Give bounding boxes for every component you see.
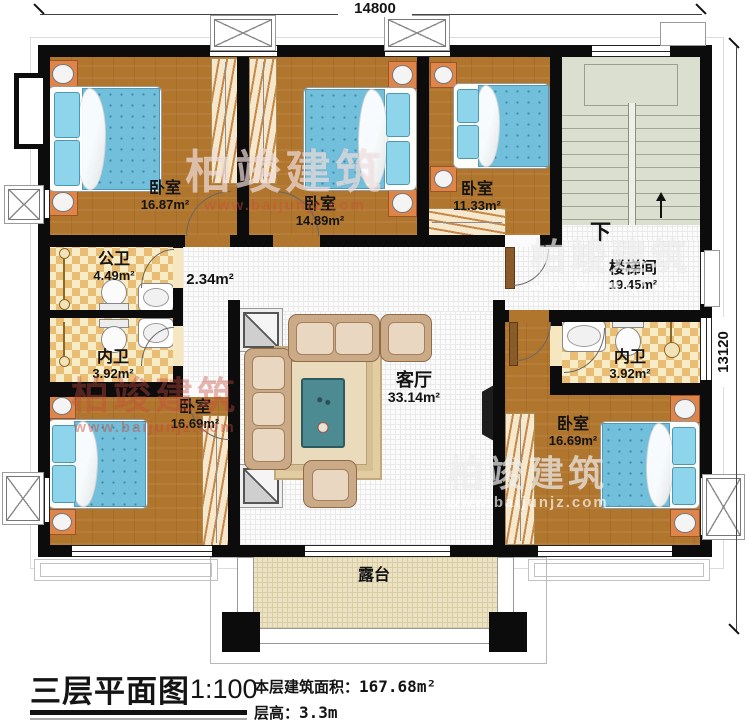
room-name: 卧室 — [523, 416, 623, 434]
coffee-table — [301, 378, 345, 448]
plan-scale-value: 1:100 — [190, 674, 258, 704]
room-area: 2.34m² — [186, 271, 234, 288]
nightstand — [430, 62, 457, 88]
terrace-door — [305, 545, 450, 557]
room-name: 客厅 — [364, 370, 464, 390]
wardrobe — [249, 58, 277, 184]
window — [538, 545, 672, 557]
room-area: 16.69m² — [145, 417, 245, 432]
nightstand — [670, 509, 700, 537]
dimension-line-right — [736, 47, 737, 632]
sofa-cushion — [312, 469, 349, 501]
window-symbol-icon — [660, 22, 706, 46]
window — [72, 545, 212, 557]
room-label-bath-public: 公卫 4.49m² — [79, 251, 149, 283]
room-label-bedroom-bottom-left: 卧室 16.69m² — [145, 399, 245, 431]
rail-knob-icon — [59, 299, 70, 310]
pillow — [457, 89, 479, 123]
wall-bedroom-divider-2 — [417, 45, 429, 247]
sofa-cushion — [388, 322, 425, 355]
room-area: 19.45m² — [583, 278, 683, 293]
stair-down-label: 下 — [590, 216, 620, 240]
plan-title: 三层平面图 — [30, 666, 190, 711]
room-area: 3.92m² — [595, 367, 665, 382]
sofa-cushion — [335, 322, 373, 355]
room-label-living-room: 客厅 33.14m² — [364, 370, 464, 406]
towel-rail — [63, 252, 65, 304]
sofa-cushion — [252, 392, 285, 426]
pillow — [457, 125, 479, 159]
wall-bath-right-bottom — [550, 383, 712, 395]
pillow — [386, 93, 410, 137]
dimension-label-right: 13120 — [715, 317, 733, 387]
dimension-tick-icon — [695, 3, 706, 14]
title-underline-2 — [30, 718, 247, 720]
door-gap — [509, 310, 549, 322]
door-gap — [173, 326, 183, 366]
window-sill — [534, 563, 704, 577]
room-name: 卧室 — [270, 196, 370, 214]
pillow — [52, 465, 76, 503]
dimension-tick-icon — [33, 3, 44, 14]
window — [592, 45, 670, 57]
door-gap — [185, 235, 230, 247]
wall-stairwell-left — [550, 45, 562, 247]
floor-height-label: 层高： — [254, 705, 299, 722]
sofa-loveseat — [288, 314, 380, 362]
sofa-cushion — [252, 428, 285, 462]
wall-baths-left-divider — [38, 310, 173, 318]
floor-area-line: 本层建筑面积：167.68m² — [254, 676, 436, 697]
room-label-bedroom-top-middle: 卧室 14.89m² — [270, 196, 370, 228]
room-area: 16.87m² — [115, 198, 215, 213]
room-label-stairwell: 楼梯间 19.45m² — [583, 260, 683, 292]
nightstand — [388, 189, 417, 217]
window — [700, 318, 712, 380]
window-symbol-icon — [8, 189, 40, 220]
floor-height-line: 层高：3.3m — [254, 702, 338, 723]
nightstand — [670, 395, 700, 423]
flue-bump — [14, 73, 48, 149]
floor-area-value: 167.68m² — [359, 677, 436, 696]
sofa-cushion — [252, 356, 285, 390]
title-underline — [30, 710, 247, 715]
terrace-parapet — [237, 628, 514, 644]
wall-bedroom-divider-1 — [237, 45, 249, 247]
wardrobe — [211, 58, 239, 184]
window-symbol-icon — [6, 476, 40, 521]
stair-landing — [584, 64, 678, 106]
room-area: 16.69m² — [523, 434, 623, 449]
stair-divider — [628, 103, 636, 225]
window-symbol-icon — [704, 250, 720, 307]
pillow — [54, 140, 80, 186]
pillow — [52, 425, 76, 463]
room-name: 卧室 — [145, 399, 245, 417]
floor-height-value: 3.3m — [299, 703, 338, 722]
room-area: 3.92m² — [78, 367, 148, 382]
floor-area-label: 本层建筑面积： — [254, 679, 359, 696]
dimension-label-top: 14800 — [338, 0, 412, 17]
room-label-bath-ensuite-left: 内卫 3.92m² — [78, 349, 148, 381]
room-name: 露台 — [358, 567, 390, 584]
pillow — [386, 141, 410, 185]
room-area: 11.33m² — [427, 199, 527, 214]
room-name: 卧室 — [427, 181, 527, 199]
window-symbol-icon — [214, 19, 272, 47]
room-label-bedroom-top-right: 卧室 11.33m² — [427, 181, 527, 213]
window-symbol-icon — [388, 19, 446, 47]
dimension-tick-icon — [728, 37, 739, 48]
room-area: 33.14m² — [364, 390, 464, 406]
room-area: 14.89m² — [270, 214, 370, 229]
room-name: 内卫 — [595, 349, 665, 367]
armchair — [380, 314, 432, 362]
terrace-column — [222, 612, 260, 652]
side-table — [243, 312, 279, 348]
nightstand — [388, 61, 417, 89]
room-label-corridor: 2.34m² — [170, 272, 250, 289]
nightstand — [48, 188, 78, 216]
room-label-bedroom-bottom-right: 卧室 16.69m² — [523, 416, 623, 448]
wall-living-east — [493, 300, 505, 557]
room-name: 公卫 — [79, 251, 149, 269]
room-label-terrace: 露台 — [334, 567, 414, 585]
plan-scale: 1:100 — [190, 674, 258, 705]
room-name: 内卫 — [78, 349, 148, 367]
pillow — [672, 467, 696, 505]
nightstand — [48, 509, 76, 535]
room-name: 楼梯间 — [583, 260, 683, 278]
room-area: 4.49m² — [79, 269, 149, 284]
pillow — [54, 92, 80, 138]
window-sill — [40, 563, 212, 577]
pillow — [672, 427, 696, 465]
nightstand — [48, 60, 78, 88]
rail-knob-icon — [59, 248, 70, 259]
sofa-main — [244, 348, 292, 470]
rail-knob-icon — [59, 356, 70, 367]
door-gap — [183, 382, 228, 397]
room-name: 卧室 — [115, 180, 215, 198]
room-label-bedroom-top-left: 卧室 16.87m² — [115, 180, 215, 212]
sofa-cushion — [296, 322, 334, 355]
armchair — [303, 460, 357, 508]
door-gap — [273, 235, 320, 247]
stair-direction-arrow-line — [660, 200, 662, 218]
door-gap — [505, 235, 540, 247]
shower-head-icon — [664, 342, 680, 358]
floor-plan-page: 下 — [0, 0, 750, 728]
room-label-bath-ensuite-right: 内卫 3.92m² — [595, 349, 665, 381]
terrace-column — [489, 612, 527, 652]
door-gap — [550, 326, 562, 366]
dimension-tick-icon — [728, 623, 739, 634]
